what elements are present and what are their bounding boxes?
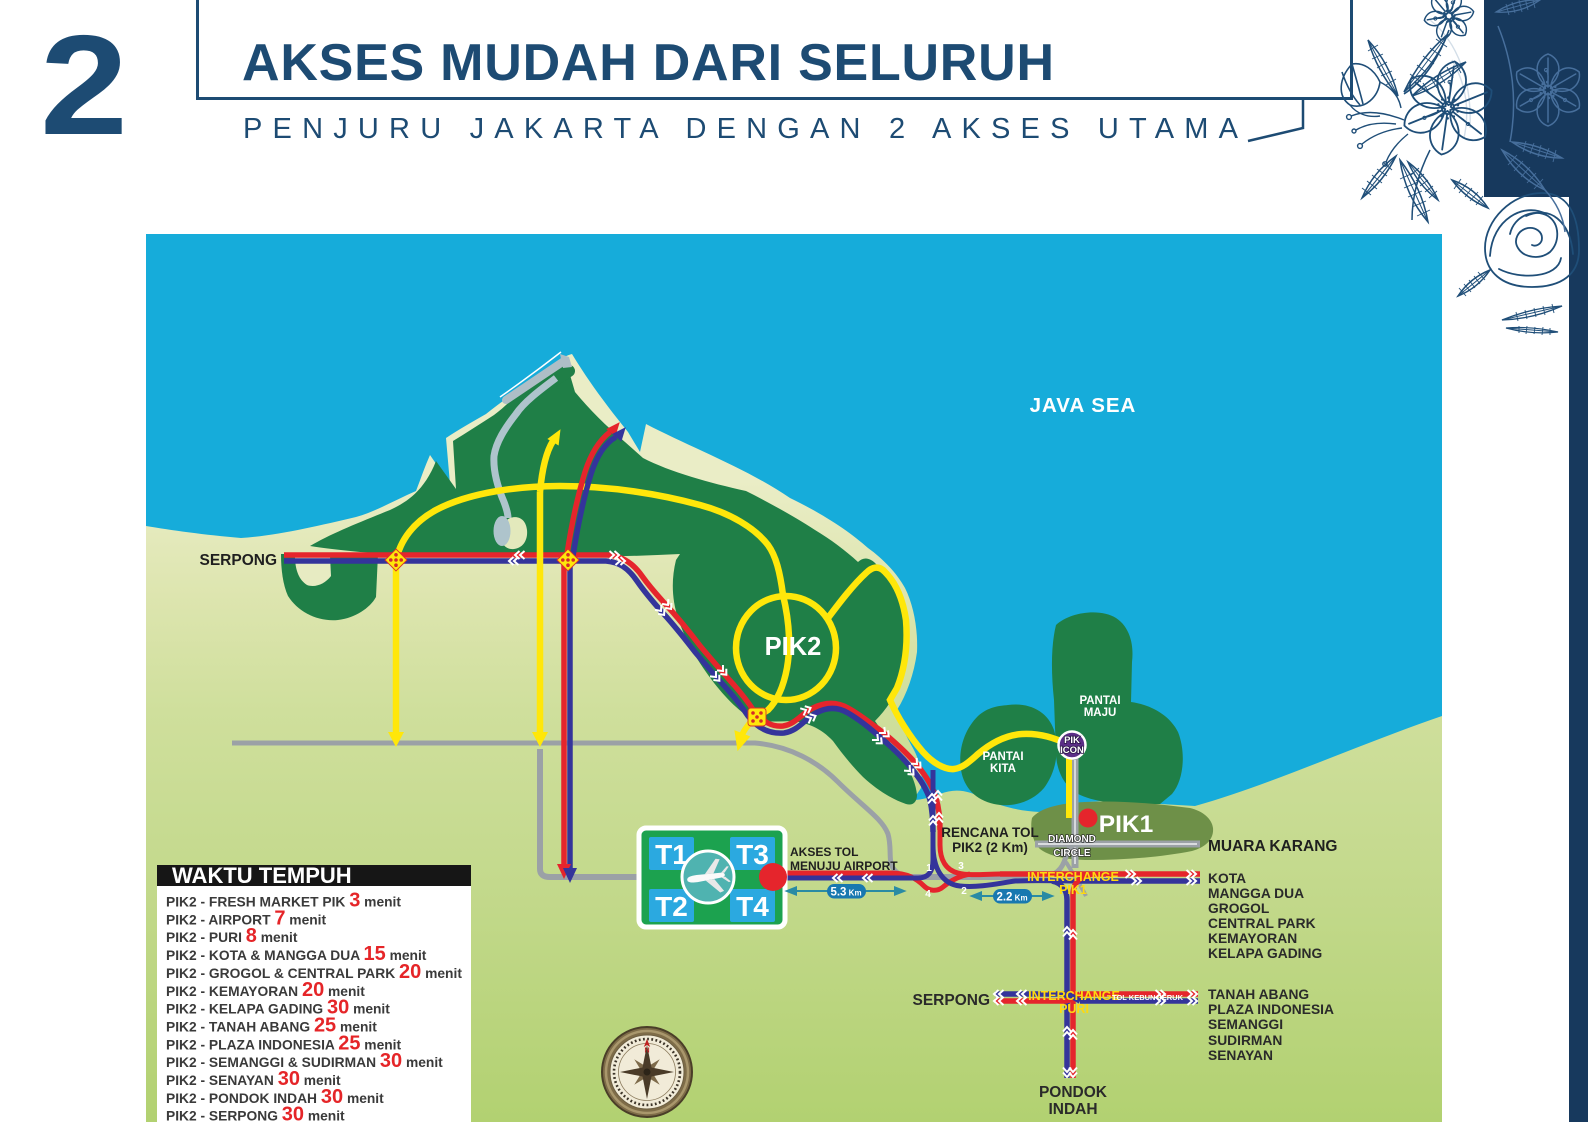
- svg-text:4: 4: [925, 889, 931, 900]
- svg-text:DIAMOND: DIAMOND: [1048, 834, 1096, 845]
- svg-text:JAVA SEA: JAVA SEA: [1030, 394, 1137, 417]
- svg-text:TOL KEBUN JERUK: TOL KEBUN JERUK: [1112, 993, 1184, 1002]
- svg-text:PLAZA INDONESIA: PLAZA INDONESIA: [1208, 1002, 1334, 1017]
- svg-text:AKSES TOL: AKSES TOL: [790, 845, 858, 859]
- svg-text:SUDIRMAN: SUDIRMAN: [1208, 1033, 1282, 1048]
- svg-text:3: 3: [958, 861, 964, 872]
- svg-text:KEMAYORAN: KEMAYORAN: [1208, 931, 1297, 946]
- svg-text:N: N: [644, 1048, 649, 1055]
- svg-text:1: 1: [926, 863, 932, 874]
- svg-text:PONDOK: PONDOK: [1039, 1084, 1108, 1101]
- svg-text:PANTAI: PANTAI: [1079, 695, 1120, 707]
- svg-text:INTERCHANGE: INTERCHANGE: [1027, 870, 1119, 884]
- svg-text:T2: T2: [655, 891, 688, 922]
- svg-text:INDAH: INDAH: [1048, 1101, 1097, 1118]
- svg-text:MAJU: MAJU: [1084, 707, 1117, 719]
- svg-text:2: 2: [961, 886, 967, 897]
- svg-text:AKSES MUDAH DARI SELURUH: AKSES MUDAH DARI SELURUH: [242, 34, 1055, 92]
- svg-text:ICON: ICON: [1060, 745, 1084, 756]
- svg-text:T4: T4: [736, 891, 769, 922]
- svg-text:PIK2: PIK2: [765, 633, 822, 661]
- svg-text:PIK1: PIK1: [1059, 883, 1087, 897]
- svg-text:CENTRAL PARK: CENTRAL PARK: [1208, 916, 1316, 931]
- svg-text:2: 2: [40, 6, 128, 165]
- svg-text:MUARA KARANG: MUARA KARANG: [1208, 838, 1337, 855]
- svg-text:KELAPA GADING: KELAPA GADING: [1208, 946, 1322, 961]
- svg-text:KOTA: KOTA: [1208, 871, 1246, 886]
- svg-text:T3: T3: [736, 839, 769, 870]
- svg-text:CIRCLE: CIRCLE: [1053, 848, 1091, 859]
- svg-text:SERPONG: SERPONG: [912, 992, 990, 1009]
- svg-text:5.3 Km: 5.3 Km: [830, 887, 861, 899]
- svg-text:TANAH ABANG: TANAH ABANG: [1208, 987, 1309, 1002]
- svg-text:PURI: PURI: [1059, 1002, 1089, 1016]
- svg-text:PIK1: PIK1: [1099, 811, 1153, 838]
- svg-text:MANGGA DUA: MANGGA DUA: [1208, 886, 1304, 901]
- svg-text:PIK2 (2 Km): PIK2 (2 Km): [952, 840, 1028, 855]
- svg-text:RENCANA TOL: RENCANA TOL: [941, 825, 1039, 840]
- svg-text:T1: T1: [655, 839, 688, 870]
- svg-text:PANTAI: PANTAI: [982, 751, 1023, 763]
- svg-text:PENJURU JAKARTA DENGAN 2 AKSES: PENJURU JAKARTA DENGAN 2 AKSES UTAMA: [243, 113, 1248, 145]
- svg-text:SENAYAN: SENAYAN: [1208, 1048, 1273, 1063]
- svg-text:INTERCHANGE: INTERCHANGE: [1028, 989, 1120, 1003]
- svg-text:SERPONG: SERPONG: [199, 552, 277, 569]
- svg-text:KITA: KITA: [990, 763, 1016, 775]
- svg-text:MENUJU AIRPORT: MENUJU AIRPORT: [790, 859, 898, 873]
- svg-text:GROGOL: GROGOL: [1208, 901, 1269, 916]
- svg-text:SEMANGGI: SEMANGGI: [1208, 1017, 1283, 1032]
- svg-text:2.2 Km: 2.2 Km: [996, 892, 1027, 904]
- svg-text:WAKTU TEMPUH: WAKTU TEMPUH: [172, 863, 352, 888]
